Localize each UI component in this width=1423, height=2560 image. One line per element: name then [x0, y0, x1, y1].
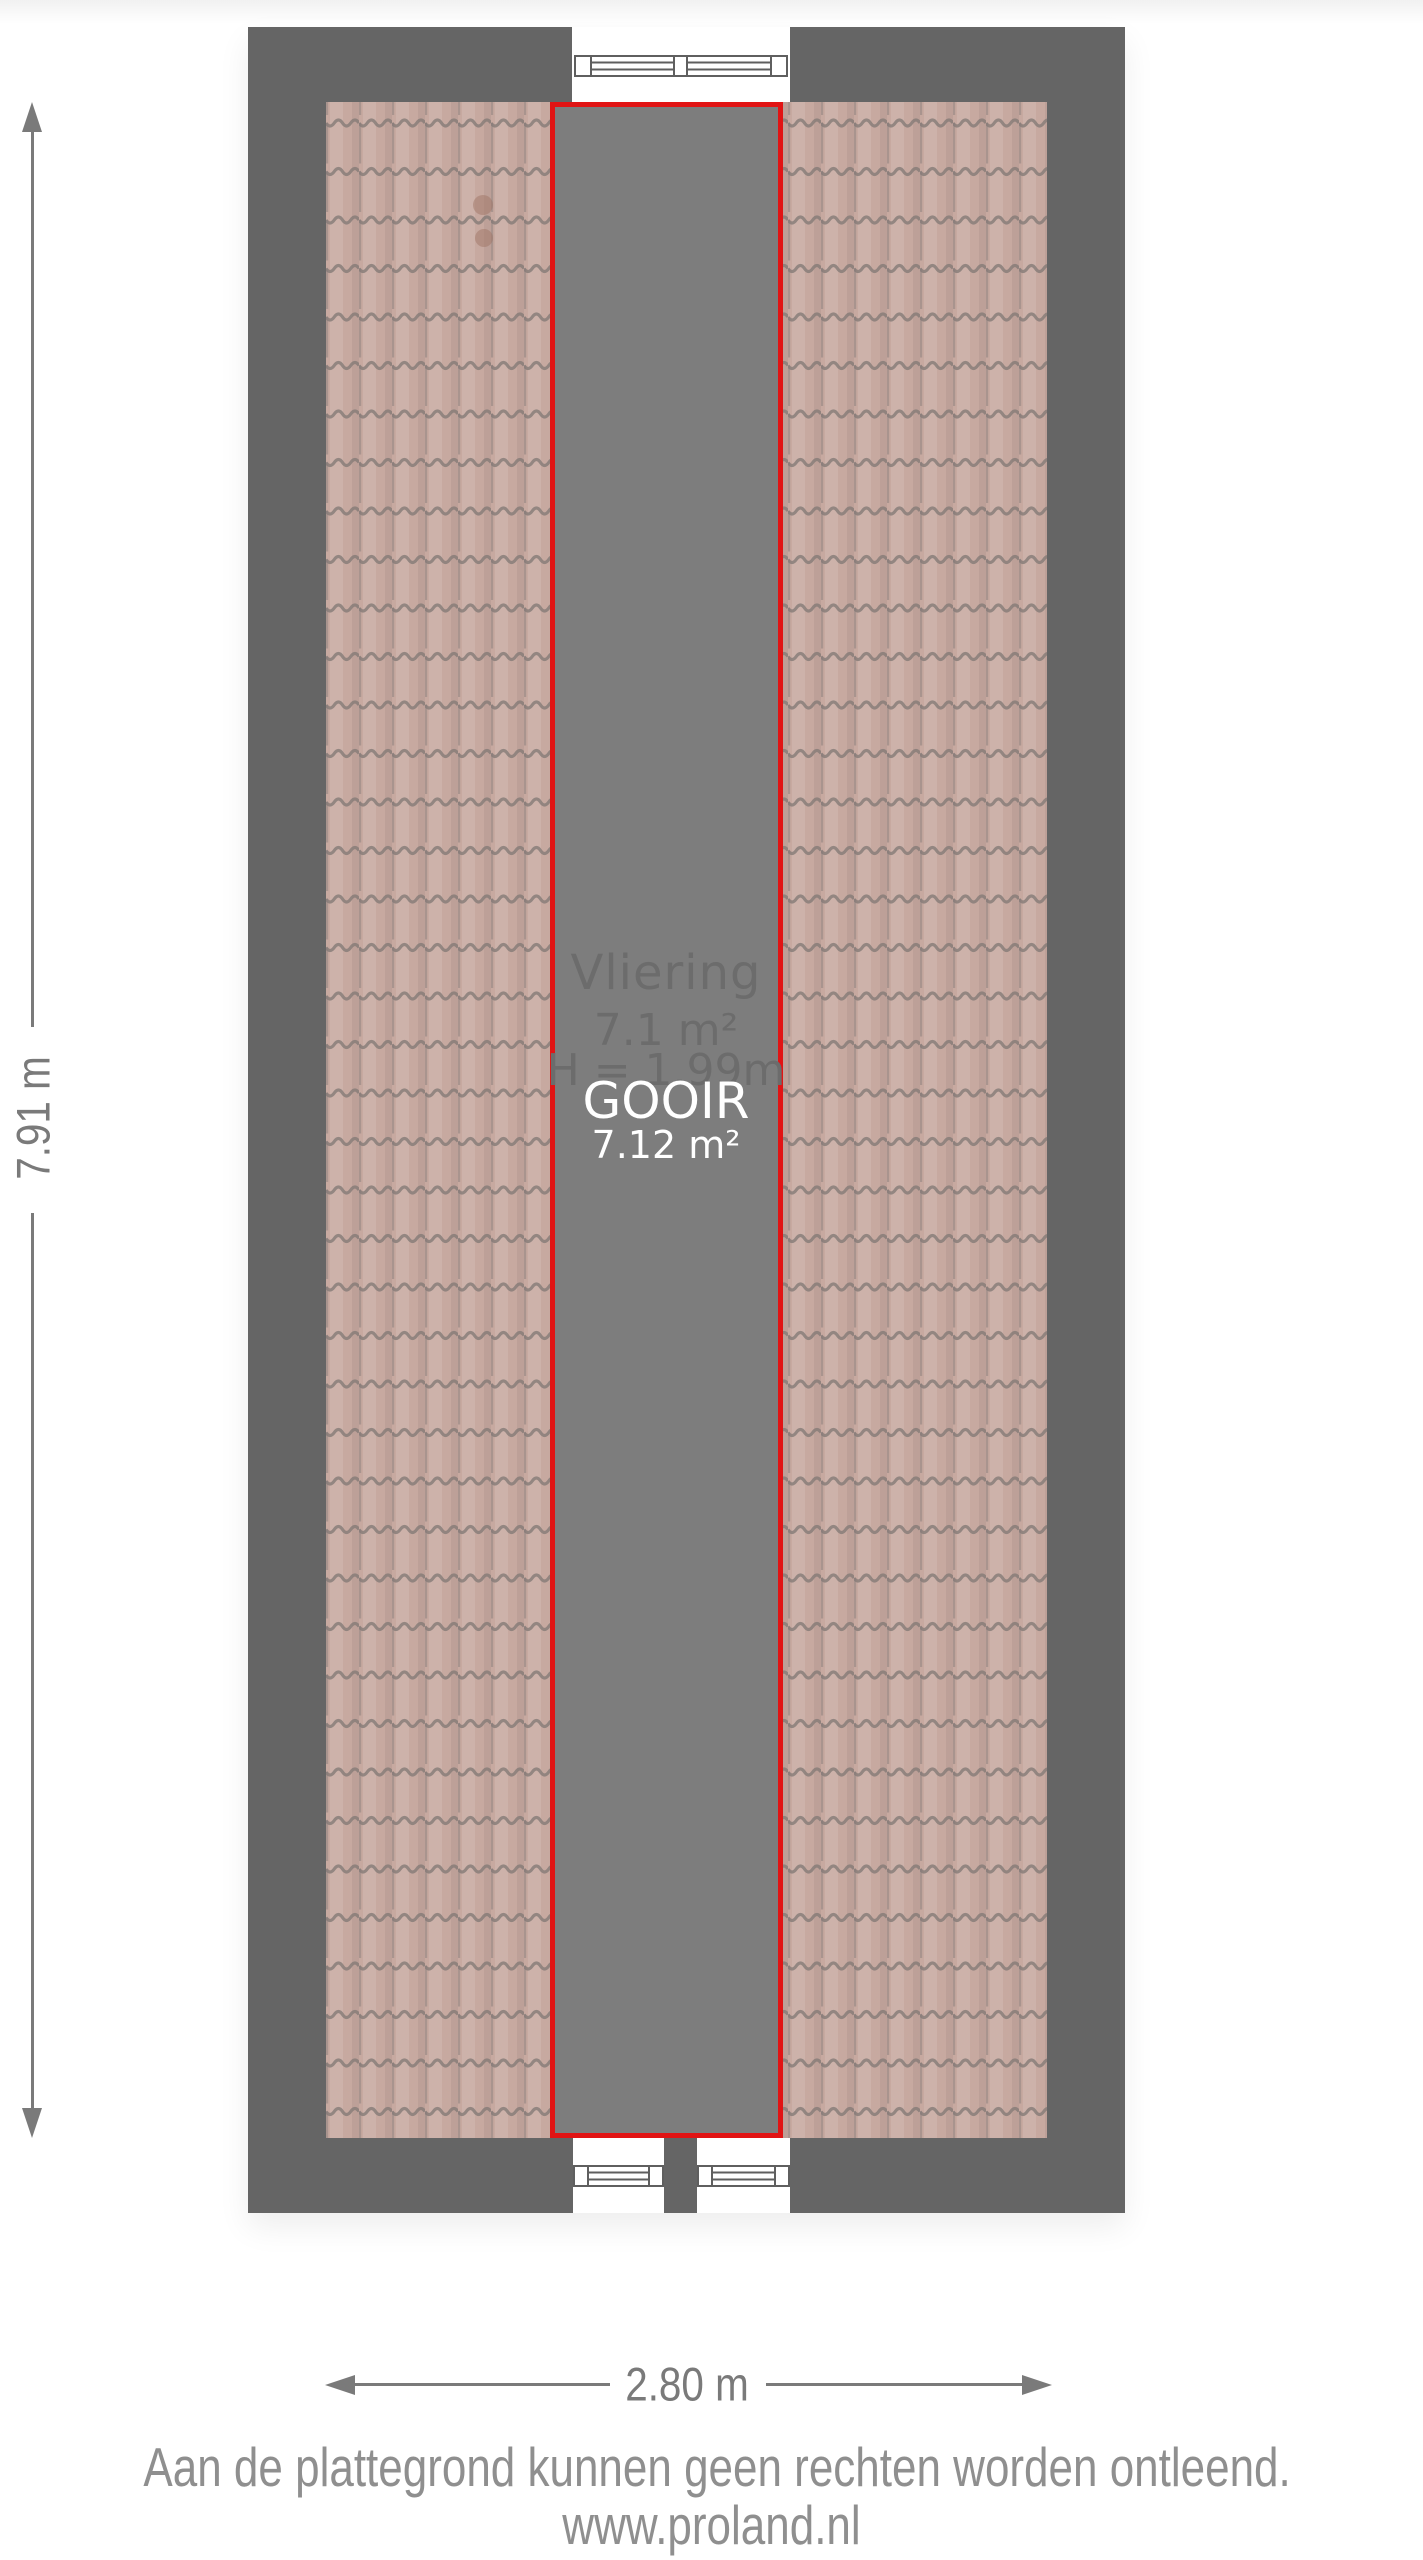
marker-name-label: GOOIR [583, 1076, 750, 1126]
roof-panel-left [326, 102, 550, 2138]
room-name-label: Vliering [571, 949, 762, 997]
window-opening-bottom-left [573, 2138, 664, 2213]
website-text: www.proland.nl [562, 2498, 860, 2553]
window-opening-bottom-right [697, 2138, 790, 2213]
roof-blemish [475, 229, 493, 247]
dimension-line [354, 2383, 610, 2386]
website-line: www.proland.nl [0, 2498, 1423, 2553]
dimension-line [766, 2383, 1022, 2386]
roof-panel-right [783, 102, 1047, 2138]
floorplan-page: Vliering 7.1 m² H = 1.99m GOOIR 7.12 m² … [0, 0, 1423, 2560]
disclaimer-line: Aan de plattegrond kunnen geen rechten w… [0, 2440, 1423, 2495]
window-icon [574, 55, 788, 77]
window-opening-top [572, 27, 790, 102]
arrow-up-icon [22, 102, 42, 132]
window-icon [697, 2165, 790, 2187]
vertical-dimension-label: 7.91 m [10, 1056, 57, 1180]
disclaimer-text: Aan de plattegrond kunnen geen rechten w… [143, 2440, 1290, 2495]
floor-plan: Vliering 7.1 m² H = 1.99m GOOIR 7.12 m² [248, 27, 1125, 2213]
horizontal-dimension-label: 2.80 m [625, 2361, 749, 2408]
arrow-left-icon [325, 2375, 355, 2395]
dimension-line [31, 131, 34, 1027]
window-icon [573, 2165, 664, 2187]
dimension-line [31, 1213, 34, 2108]
arrow-right-icon [1022, 2375, 1052, 2395]
arrow-down-icon [22, 2108, 42, 2138]
marker-area-label: 7.12 m² [592, 1126, 741, 1164]
roof-blemish [473, 195, 493, 215]
